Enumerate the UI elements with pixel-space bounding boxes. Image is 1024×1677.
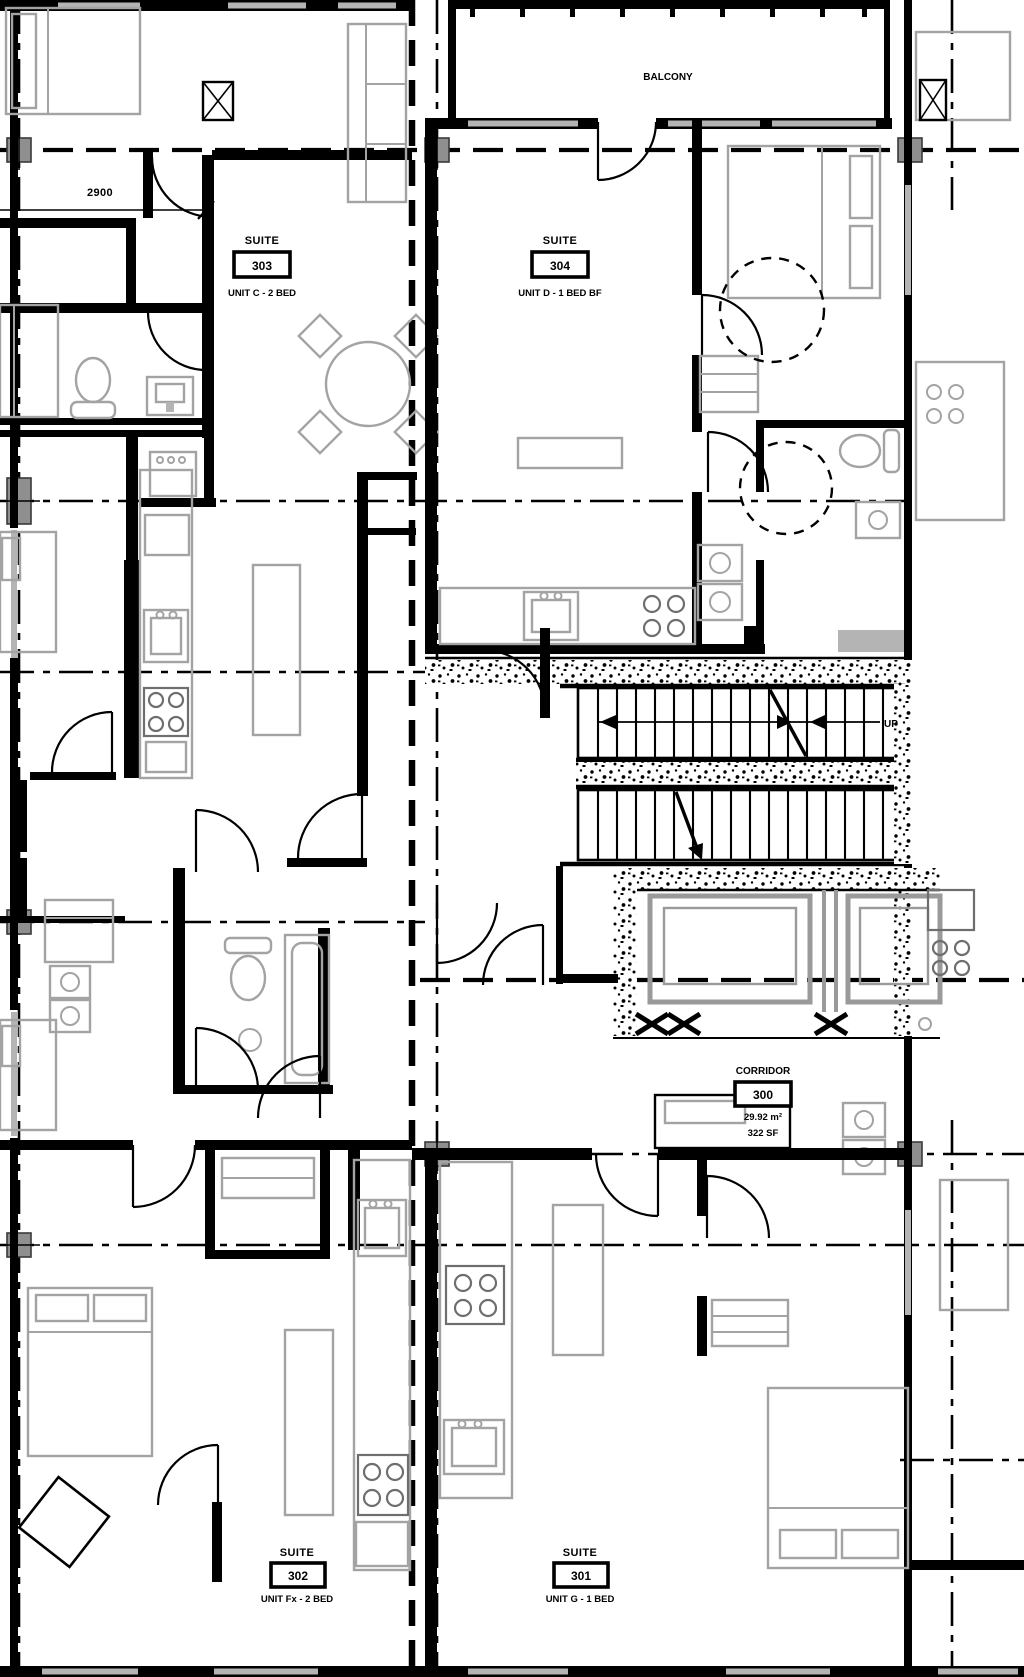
corridor-area-imperial: 322 SF bbox=[748, 1128, 779, 1139]
shaft-divider bbox=[822, 890, 826, 1012]
suite-type: SUITE bbox=[280, 1547, 314, 1559]
wall bbox=[15, 780, 27, 852]
concrete-landing-stipple bbox=[576, 762, 902, 785]
suite-number: 302 bbox=[288, 1569, 308, 1583]
window bbox=[214, 1669, 318, 1675]
window bbox=[338, 3, 396, 9]
wall bbox=[205, 1250, 330, 1259]
concrete-wall-stipple-top bbox=[425, 660, 912, 684]
shaft-divider bbox=[834, 890, 838, 1012]
wall bbox=[0, 1140, 133, 1150]
window bbox=[468, 121, 578, 127]
window bbox=[726, 1669, 830, 1675]
window bbox=[905, 1210, 911, 1315]
wall bbox=[425, 1148, 437, 1677]
floor-plan-drawing: 2900 BALCONY SUITE 303 UNIT C - 2 BED SU… bbox=[0, 0, 1024, 1677]
suite-unit-type: UNIT C - 2 BED bbox=[228, 288, 296, 299]
balcony-rail bbox=[448, 0, 890, 9]
corridor-number: 300 bbox=[753, 1088, 773, 1102]
wall bbox=[287, 858, 367, 867]
window bbox=[772, 121, 876, 127]
window bbox=[11, 530, 17, 658]
west-wall-lower bbox=[10, 1138, 18, 1677]
wall bbox=[173, 868, 185, 1090]
bedroom-wall bbox=[692, 118, 702, 295]
concrete-wall-stipple-bottom bbox=[613, 868, 940, 890]
wall bbox=[658, 1148, 912, 1160]
hall-wall bbox=[126, 218, 136, 306]
corridor-name: CORRIDOR bbox=[736, 1066, 791, 1077]
stair-up-label: UP bbox=[884, 719, 898, 730]
floor-plan-page: 2900 BALCONY SUITE 303 UNIT C - 2 BED SU… bbox=[0, 0, 1024, 1677]
wall bbox=[912, 1560, 1024, 1570]
closet-band bbox=[838, 630, 904, 652]
dimension-text: 2900 bbox=[87, 187, 113, 199]
bath-wall bbox=[756, 420, 908, 428]
wall bbox=[212, 1502, 222, 1582]
concrete-wall-stipple-right2 bbox=[894, 890, 912, 1036]
wall bbox=[195, 1140, 412, 1150]
window bbox=[42, 1669, 138, 1675]
balcony-side-right bbox=[884, 0, 890, 124]
kitchen-wall bbox=[425, 644, 765, 654]
wall bbox=[205, 1150, 215, 1254]
suite-unit-type: UNIT D - 1 BED BF bbox=[518, 288, 602, 299]
wall bbox=[212, 150, 412, 160]
bath-wall bbox=[756, 560, 764, 648]
suite-type: SUITE bbox=[543, 235, 577, 247]
wall bbox=[556, 974, 618, 983]
suite-number: 304 bbox=[550, 259, 570, 273]
bedroom-wall bbox=[697, 1296, 707, 1356]
wall bbox=[412, 1148, 592, 1160]
window bbox=[668, 121, 760, 127]
concrete-wall-stipple-right bbox=[894, 684, 912, 864]
suite-type: SUITE bbox=[245, 235, 279, 247]
balcony-label: BALCONY bbox=[643, 72, 693, 83]
wall bbox=[368, 528, 416, 535]
wall bbox=[320, 1150, 330, 1254]
suite-unit-type: UNIT G - 1 BED bbox=[546, 1594, 615, 1605]
window bbox=[228, 3, 306, 9]
wall bbox=[15, 858, 27, 920]
suite-number: 303 bbox=[252, 259, 272, 273]
wall bbox=[30, 772, 116, 780]
window bbox=[11, 1012, 17, 1136]
concrete-wall-stipple-lobby bbox=[613, 890, 637, 1036]
bedroom-wall bbox=[697, 1160, 707, 1216]
suite-unit-type: UNIT Fx - 2 BED bbox=[261, 1594, 333, 1605]
wall bbox=[556, 866, 563, 984]
wall bbox=[357, 478, 368, 796]
balcony-side-left bbox=[448, 0, 456, 124]
hall-wall bbox=[0, 218, 132, 228]
suite-type: SUITE bbox=[563, 1547, 597, 1559]
wall bbox=[425, 118, 437, 648]
window bbox=[905, 185, 911, 295]
suite-number: 301 bbox=[571, 1569, 591, 1583]
corridor-area-metric: 29.92 m² bbox=[744, 1112, 782, 1123]
window bbox=[468, 1669, 568, 1675]
window bbox=[938, 1669, 1018, 1675]
